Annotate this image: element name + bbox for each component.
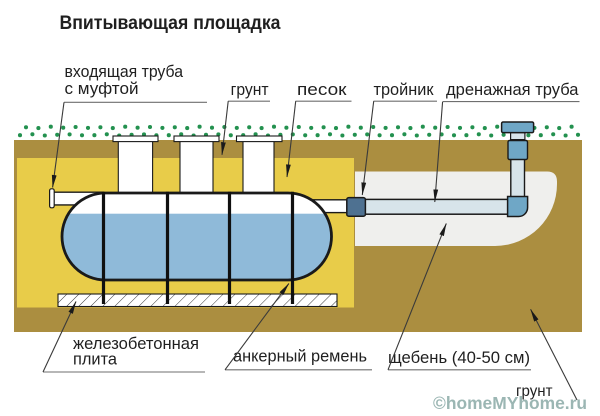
svg-text:щебень (40-50 см): щебень (40-50 см) — [388, 349, 530, 367]
svg-text:анкерный ремень: анкерный ремень — [233, 347, 367, 365]
svg-text:грунт: грунт — [231, 81, 269, 99]
svg-text:Впитывающая площадка: Впитывающая площадка — [60, 12, 281, 34]
svg-text:дренажная труба: дренажная труба — [446, 81, 579, 99]
svg-text:тройник: тройник — [374, 81, 435, 99]
svg-text:входящая труба: входящая труба — [65, 63, 184, 81]
svg-text:песок: песок — [297, 81, 347, 99]
svg-text:плита: плита — [73, 350, 118, 368]
svg-text:с муфтой: с муфтой — [65, 80, 139, 98]
svg-text:©homeMYhome.ru: ©homeMYhome.ru — [433, 393, 587, 413]
